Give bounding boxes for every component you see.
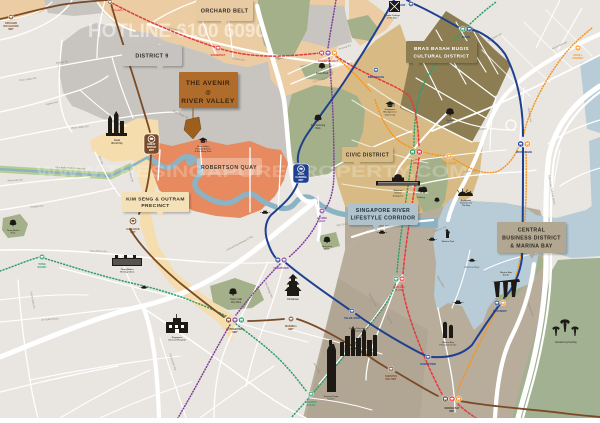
svg-text:Heritage Area: Heritage Area (120, 271, 135, 274)
svg-text:Raffles: Raffles (446, 120, 454, 122)
svg-text:DHOBY GHAUT: DHOBY GHAUT (318, 59, 338, 63)
svg-text:Fort Canning: Fort Canning (311, 124, 326, 127)
svg-text:KIM SENG & OUTRAM: KIM SENG & OUTRAM (126, 196, 185, 202)
svg-text:BENCOOLEN: BENCOOLEN (368, 76, 384, 79)
svg-text:MRT: MRT (149, 149, 155, 152)
svg-text:ORCHARD BELT: ORCHARD BELT (201, 8, 249, 14)
svg-text:Hong Lim: Hong Lim (322, 246, 332, 248)
svg-text:The Bay: The Bay (462, 205, 471, 207)
svg-text:Gardens by the Bay: Gardens by the Bay (555, 341, 577, 344)
svg-text:CIVIC DISTRICT: CIVIC DISTRICT (346, 152, 389, 158)
svg-text:LIFESTYLE CORRIDOR: LIFESTYLE CORRIDOR (351, 216, 416, 222)
svg-text:Hotel: Hotel (447, 122, 453, 125)
svg-text:THE AVENIR: THE AVENIR (186, 80, 230, 87)
svg-text:SINGAPORE RIVER: SINGAPORE RIVER (356, 208, 410, 214)
svg-text:River Valley: River Valley (197, 145, 210, 148)
svg-text:Singapore: Singapore (172, 337, 183, 339)
svg-text:Primary School: Primary School (195, 148, 211, 151)
svg-text:& Kim Seng Park: & Kim Seng Park (195, 150, 213, 153)
svg-text:Lasalle College: Lasalle College (384, 15, 401, 17)
svg-text:Tanjong Pagar: Tanjong Pagar (323, 396, 338, 398)
svg-text:PROMENADE: PROMENADE (516, 151, 533, 154)
svg-text:MRT: MRT (298, 179, 304, 182)
svg-text:Tiong Bahru Rd: Tiong Bahru Rd (89, 250, 107, 254)
svg-text:PAGAR: PAGAR (307, 404, 316, 407)
svg-text:Theatres On: Theatres On (460, 202, 473, 205)
svg-text:PRECINCT: PRECINCT (141, 203, 169, 209)
svg-text:Tiong Bahru: Tiong Bahru (7, 230, 21, 232)
svg-text:HIGHWAY: HIGHWAY (572, 57, 584, 60)
svg-text:HALL: HALL (413, 162, 420, 165)
svg-text:PLACE: PLACE (395, 289, 404, 292)
svg-text:ESPLANADE: ESPLANADE (442, 162, 457, 165)
svg-text:SOMERSET: SOMERSET (210, 53, 225, 57)
svg-text:MRT: MRT (288, 328, 294, 331)
svg-text:QUAY: QUAY (319, 220, 326, 223)
svg-text:Istana Park: Istana Park (316, 72, 329, 75)
svg-text:Sands: Sands (503, 275, 510, 277)
svg-text:RIVER VALLEY: RIVER VALLEY (181, 98, 235, 105)
svg-text:Financial Centre: Financial Centre (439, 344, 457, 347)
svg-text:@: @ (205, 90, 210, 96)
svg-text:Merlion Park: Merlion Park (442, 240, 455, 243)
svg-text:MRT: MRT (8, 28, 14, 31)
svg-text:BAYFRONT: BAYFRONT (493, 310, 507, 313)
svg-text:ORCHARD: ORCHARD (111, 9, 123, 12)
svg-text:Tiong Bahru: Tiong Bahru (121, 269, 135, 271)
svg-text:Park: Park (11, 233, 17, 235)
svg-text:BAHRU: BAHRU (38, 266, 47, 269)
svg-text:General Hospital: General Hospital (168, 339, 186, 342)
svg-text:WAY MRT: WAY MRT (385, 378, 397, 381)
svg-text:Singapore: Singapore (393, 195, 404, 197)
svg-text:Padang: Padang (417, 197, 426, 199)
svg-text:Park: Park (316, 128, 322, 130)
svg-text:& MARINA BAY: & MARINA BAY (510, 243, 553, 249)
svg-text:DOWNTOWN: DOWNTOWN (420, 363, 436, 366)
svg-text:BRAS BASAH BUGIS: BRAS BASAH BUGIS (414, 46, 469, 52)
svg-text:Chinatown: Chinatown (287, 298, 299, 301)
svg-text:World City: World City (111, 142, 123, 145)
svg-text:Park: Park (325, 249, 331, 251)
svg-text:City Park: City Park (231, 301, 242, 304)
svg-text:BUGIS: BUGIS (462, 35, 470, 39)
svg-text:BUSINESS DISTRICT: BUSINESS DISTRICT (502, 235, 561, 241)
svg-text:MRT: MRT (130, 231, 136, 234)
svg-text:Marina Bay: Marina Bay (500, 272, 512, 274)
svg-text:Centre: Centre (328, 398, 336, 401)
svg-text:CENTRAL: CENTRAL (518, 227, 546, 233)
svg-text:DISTRICT 9: DISTRICT 9 (135, 53, 168, 59)
svg-text:ROBERTSON QUAY: ROBERTSON QUAY (201, 165, 257, 171)
svg-text:University: University (385, 113, 396, 116)
svg-text:Gallery: Gallery (394, 193, 402, 195)
svg-text:Great: Great (114, 139, 120, 142)
svg-text:Central Business: Central Business (349, 327, 368, 330)
svg-text:Marina Bay: Marina Bay (442, 342, 454, 344)
svg-text:District: District (354, 330, 362, 333)
svg-text:Singapore: Singapore (385, 109, 396, 111)
svg-text:HOTLINE 6100 6090: HOTLINE 6100 6090 (88, 21, 266, 42)
svg-text:MRT: MRT (232, 331, 238, 334)
svg-text:CHINATOWN: CHINATOWN (273, 267, 289, 270)
svg-text:Marina Bay: Marina Bay (464, 265, 480, 269)
svg-text:Pearl's Hill: Pearl's Hill (230, 299, 242, 301)
svg-text:National: National (394, 189, 403, 192)
svg-text:of the Arts: of the Arts (387, 17, 399, 20)
svg-text:TELOK AYER: TELOK AYER (344, 317, 360, 320)
svg-text:CULTURAL DISTRICT: CULTURAL DISTRICT (414, 53, 470, 59)
svg-text:MRT: MRT (449, 410, 455, 413)
svg-text:Management: Management (383, 111, 397, 114)
